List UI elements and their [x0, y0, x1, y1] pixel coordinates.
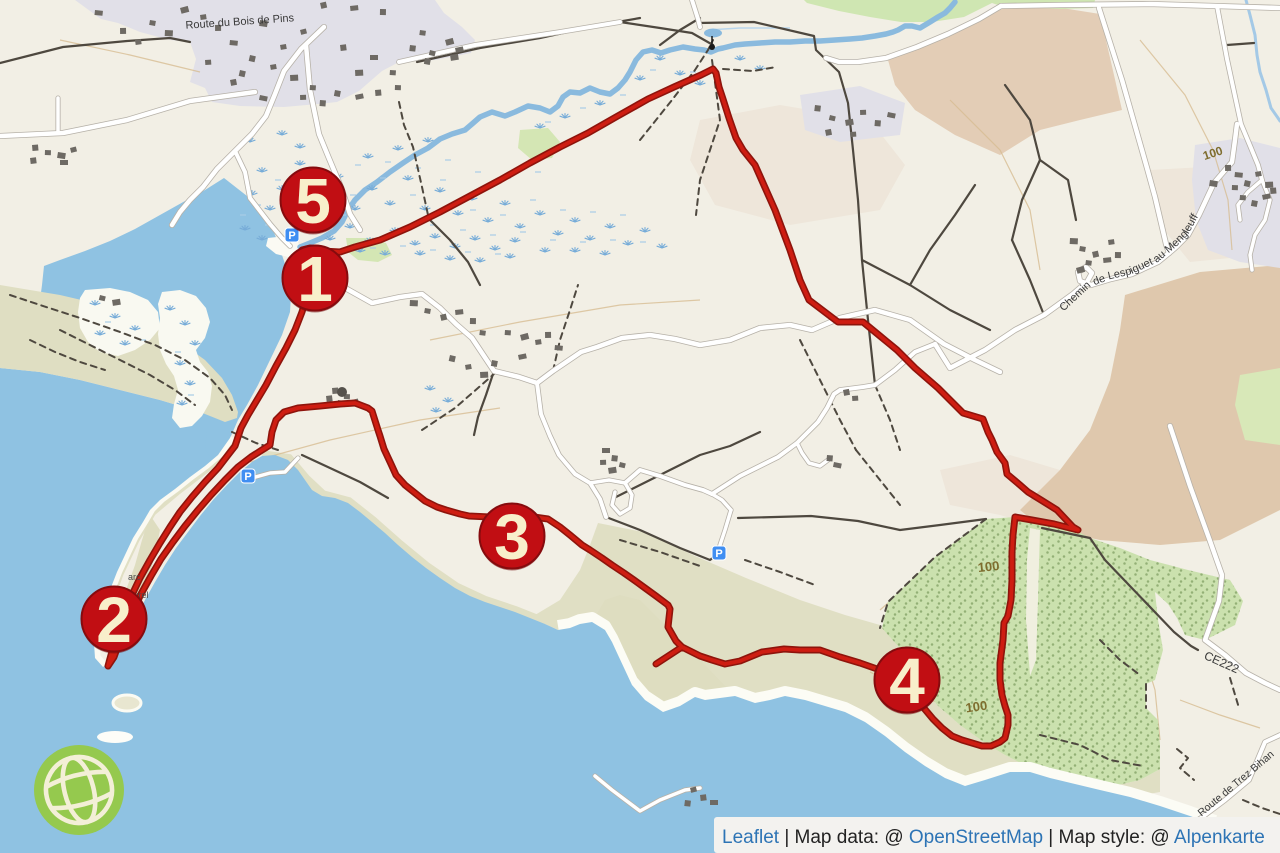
svg-text:arc: arc [128, 572, 141, 582]
svg-text:2: 2 [96, 584, 132, 656]
svg-text:3: 3 [494, 501, 530, 573]
svg-text:5: 5 [295, 165, 331, 237]
svg-text:100: 100 [977, 558, 1000, 575]
svg-text:1: 1 [297, 243, 333, 315]
svg-text:100: 100 [965, 698, 989, 716]
svg-text:Leaflet | Map data: @ OpenStre: Leaflet | Map data: @ OpenStreetMap | Ma… [722, 827, 1265, 848]
svg-text:4: 4 [889, 645, 925, 717]
